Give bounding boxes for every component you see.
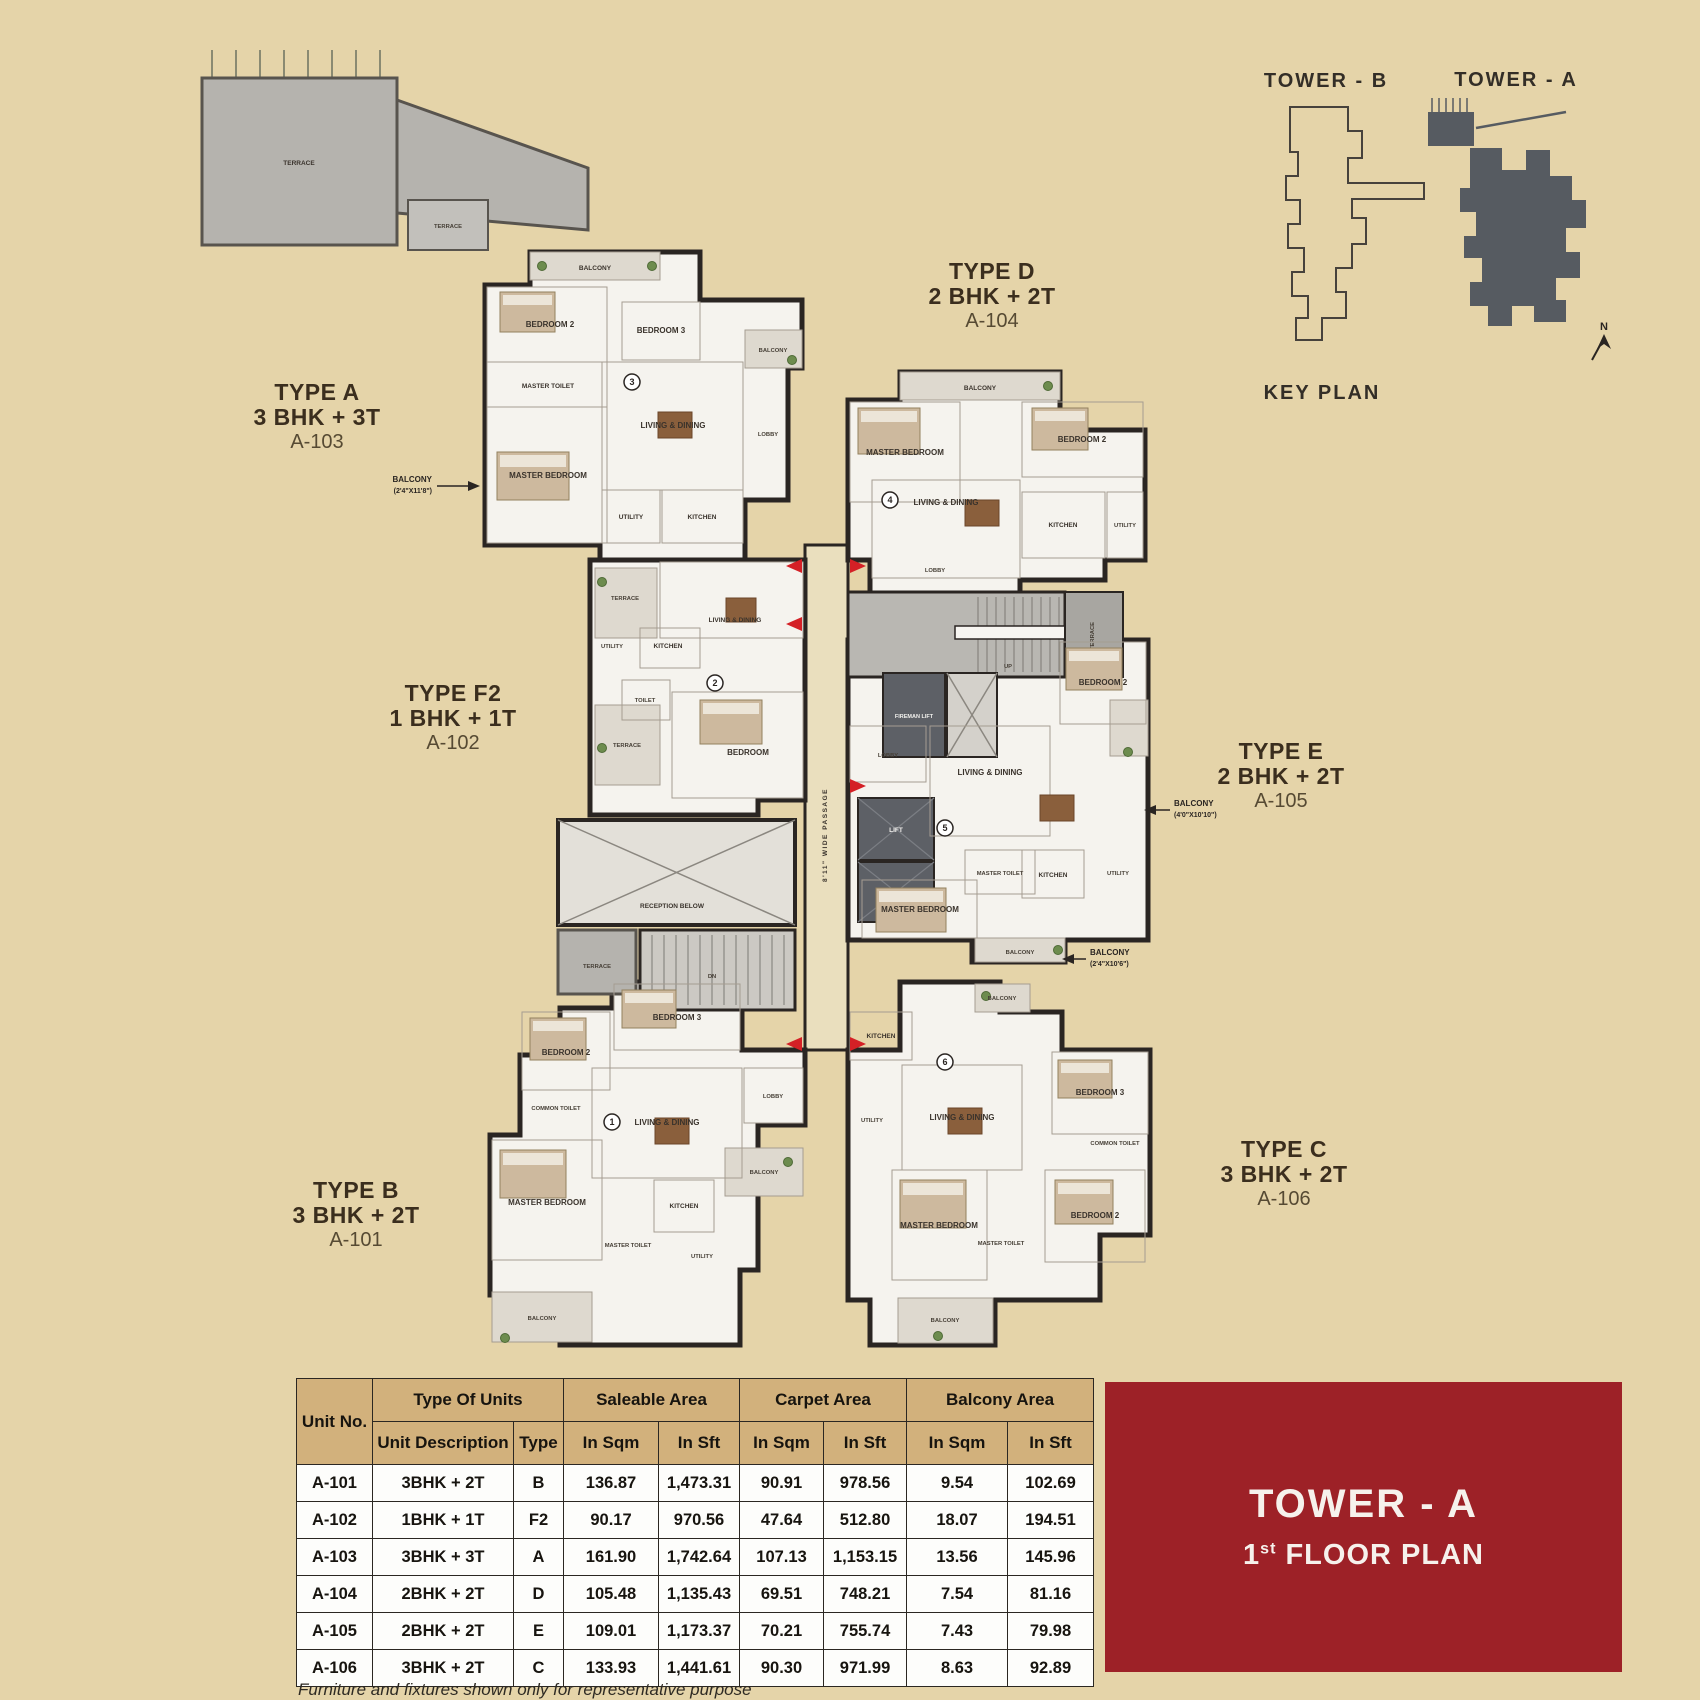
tower-title-box: TOWER - A 1st FLOOR PLAN [1105, 1382, 1622, 1672]
table-row: A-1033BHK + 3TA161.901,742.64107.131,153… [297, 1539, 1094, 1576]
room-label: LIVING & DINING [709, 617, 762, 624]
unit-mark: 2 [712, 678, 717, 688]
north-arrow-icon: N [1592, 321, 1611, 360]
table-cell: 3BHK + 3T [373, 1539, 514, 1576]
table-cell: 755.74 [824, 1613, 907, 1650]
floor-plan-page: TERRACE TERRACE 8'11" WIDE PASSAGE TERRA… [0, 0, 1700, 1700]
room-label: UTILITY [601, 644, 623, 650]
key-plan-title: KEY PLAN [1264, 382, 1381, 404]
unit-a104-outline [848, 372, 1145, 600]
room-label: BEDROOM 2 [1058, 435, 1107, 444]
type-unit-no: A-101 [246, 1228, 466, 1253]
room-label: TERRACE [283, 160, 315, 167]
type-name: TYPE B [246, 1178, 466, 1203]
table-cell: A [514, 1539, 564, 1576]
type-config: 3 BHK + 2T [1174, 1162, 1394, 1187]
unit-no-cell: A-102 [297, 1502, 373, 1539]
room-label: UP [1004, 664, 1012, 670]
type-config: 2 BHK + 2T [1171, 764, 1391, 789]
room-label: TERRACE [1090, 622, 1096, 650]
floor-title: 1st FLOOR PLAN [1243, 1539, 1484, 1572]
unit-no-cell: A-105 [297, 1613, 373, 1650]
room-label: MASTER TOILET [977, 871, 1024, 877]
table-cell: 105.48 [564, 1576, 659, 1613]
type-label-c: TYPE C 3 BHK + 2T A-106 [1174, 1137, 1394, 1212]
key-plan: TOWER - B TOWER - A KEY PLAN N [1264, 69, 1611, 404]
unit-mark: 1 [609, 1117, 614, 1127]
type-label-d: TYPE D 2 BHK + 2T A-104 [882, 259, 1102, 334]
type-name: TYPE F2 [343, 681, 563, 706]
room-label: UTILITY [1107, 871, 1129, 877]
unit-area-table: Unit No. Type Of Units Saleable Area Car… [296, 1378, 1094, 1687]
unit-mark: 6 [942, 1057, 947, 1067]
table-cell: 109.01 [564, 1613, 659, 1650]
table-cell: 748.21 [824, 1576, 907, 1613]
svg-text:BALCONY: BALCONY [392, 475, 432, 484]
table-cell: 1BHK + 1T [373, 1502, 514, 1539]
table-cell: 102.69 [1008, 1465, 1094, 1502]
room-label: BEDROOM 3 [1076, 1088, 1125, 1097]
room-label: TERRACE [613, 743, 641, 749]
room-label: MASTER BEDROOM [866, 448, 944, 457]
room-label: BEDROOM [727, 748, 769, 757]
room-label: FIREMAN LIFT [895, 714, 934, 720]
table-cell: F2 [514, 1502, 564, 1539]
type-label-b: TYPE B 3 BHK + 2T A-101 [246, 1178, 466, 1253]
table-row: A-1052BHK + 2TE109.011,173.3770.21755.74… [297, 1613, 1094, 1650]
room-label: BALCONY [1006, 950, 1035, 956]
col-unit-no: Unit No. [297, 1379, 373, 1465]
table-row: A-1021BHK + 1TF290.17970.5647.64512.8018… [297, 1502, 1094, 1539]
table-cell: 2BHK + 2T [373, 1576, 514, 1613]
room-label: TERRACE [611, 596, 639, 602]
room-label: TOILET [635, 698, 656, 704]
room-label: DN [708, 974, 716, 980]
key-plan-tower-a-label: TOWER - A [1454, 69, 1578, 91]
table-cell: 978.56 [824, 1465, 907, 1502]
room-label: TERRACE [583, 964, 611, 970]
unit-no-cell: A-101 [297, 1465, 373, 1502]
table-cell: 1,173.37 [659, 1613, 740, 1650]
room-label: KITCHEN [867, 1033, 896, 1040]
room-label: BALCONY [759, 348, 788, 354]
room-label: MASTER BEDROOM [508, 1198, 586, 1207]
table-cell: 9.54 [907, 1465, 1008, 1502]
col-sub: In Sqm [740, 1422, 824, 1465]
unit-table-body: A-1013BHK + 2TB136.871,473.3190.91978.56… [297, 1465, 1094, 1687]
room-label: BALCONY [528, 1316, 557, 1322]
col-sub: In Sqm [907, 1422, 1008, 1465]
room-label: BALCONY [964, 385, 997, 392]
table-cell: 136.87 [564, 1465, 659, 1502]
table-row: A-1013BHK + 2TB136.871,473.3190.91978.56… [297, 1465, 1094, 1502]
table-cell: 971.99 [824, 1650, 907, 1687]
table-cell: 79.98 [1008, 1613, 1094, 1650]
north-label: N [1600, 321, 1608, 333]
room-label: COMMON TOILET [1090, 1141, 1140, 1147]
unit-mark: 5 [942, 823, 947, 833]
table-cell: 13.56 [907, 1539, 1008, 1576]
table-cell: 1,742.64 [659, 1539, 740, 1576]
room-label: KITCHEN [1049, 522, 1078, 529]
svg-text:BALCONY: BALCONY [1090, 948, 1130, 957]
room-label: UTILITY [1114, 523, 1136, 529]
table-cell: 8.63 [907, 1650, 1008, 1687]
table-cell: 70.21 [740, 1613, 824, 1650]
room-label: MASTER TOILET [978, 1241, 1025, 1247]
table-cell: 90.30 [740, 1650, 824, 1687]
unit-no-cell: A-104 [297, 1576, 373, 1613]
passage-label: 8'11" WIDE PASSAGE [822, 788, 829, 882]
room-label: LIVING & DINING [641, 421, 706, 430]
type-label-f2: TYPE F2 1 BHK + 1T A-102 [343, 681, 563, 756]
table-cell: 1,473.31 [659, 1465, 740, 1502]
type-name: TYPE C [1174, 1137, 1394, 1162]
col-sub: In Sft [824, 1422, 907, 1465]
col-balcony-area: Balcony Area [907, 1379, 1094, 1422]
room-label: LOBBY [758, 432, 778, 438]
col-carpet-area: Carpet Area [740, 1379, 907, 1422]
type-unit-no: A-106 [1174, 1187, 1394, 1212]
table-cell: 1,135.43 [659, 1576, 740, 1613]
room-label: BEDROOM 2 [1079, 678, 1128, 687]
room-label: KITCHEN [654, 643, 683, 650]
unit-mark: 4 [887, 495, 892, 505]
room-label: MASTER BEDROOM [509, 471, 587, 480]
type-name: TYPE E [1171, 739, 1391, 764]
table-cell: E [514, 1613, 564, 1650]
room-label: COMMON TOILET [531, 1106, 581, 1112]
svg-text:(2'4"X10'6"): (2'4"X10'6") [1090, 961, 1129, 968]
type-config: 3 BHK + 3T [207, 405, 427, 430]
room-label: LIVING & DINING [635, 1118, 700, 1127]
room-label: UTILITY [691, 1254, 713, 1260]
tower-title: TOWER - A [1249, 1482, 1478, 1527]
table-cell: 81.16 [1008, 1576, 1094, 1613]
table-cell: B [514, 1465, 564, 1502]
type-label-e: TYPE E 2 BHK + 2T A-105 [1171, 739, 1391, 814]
table-cell: 107.13 [740, 1539, 824, 1576]
type-label-a: TYPE A 3 BHK + 3T A-103 [207, 380, 427, 455]
table-cell: 7.43 [907, 1613, 1008, 1650]
room-label: TERRACE [434, 224, 462, 230]
svg-text:(2'4"X11'8"): (2'4"X11'8") [394, 488, 432, 495]
room-label: MASTER BEDROOM [900, 1221, 978, 1230]
table-cell: 18.07 [907, 1502, 1008, 1539]
type-config: 1 BHK + 1T [343, 706, 563, 731]
room-label: BEDROOM 2 [542, 1048, 591, 1057]
col-sub: Unit Description [373, 1422, 514, 1465]
table-cell: 512.80 [824, 1502, 907, 1539]
room-label: BEDROOM 3 [653, 1013, 702, 1022]
type-unit-no: A-102 [343, 731, 563, 756]
room-label: LIVING & DINING [958, 768, 1023, 777]
table-header: Unit No. Type Of Units Saleable Area Car… [297, 1379, 1094, 1465]
table-cell: 970.56 [659, 1502, 740, 1539]
tower-a-silhouette [1428, 98, 1586, 326]
type-unit-no: A-103 [207, 430, 427, 455]
room-label: LIFT [889, 827, 903, 834]
room-label: KITCHEN [688, 514, 717, 521]
unit-mark: 3 [629, 377, 634, 387]
room-label: BALCONY [988, 996, 1017, 1002]
room-label: MASTER TOILET [522, 383, 574, 390]
room-label: MASTER TOILET [605, 1243, 652, 1249]
room-label: LOBBY [925, 568, 945, 574]
room-label: RECEPTION BELOW [640, 903, 705, 910]
balcony-annotation: BALCONY (2'4"X11'8") [392, 475, 480, 495]
table-cell: 3BHK + 2T [373, 1465, 514, 1502]
room-label: LOBBY [878, 753, 898, 759]
room-label: UTILITY [861, 1118, 883, 1124]
col-sub: In Sft [1008, 1422, 1094, 1465]
unit-no-cell: A-103 [297, 1539, 373, 1576]
table-cell: 47.64 [740, 1502, 824, 1539]
type-config: 2 BHK + 2T [882, 284, 1102, 309]
table-cell: 194.51 [1008, 1502, 1094, 1539]
col-sub: Type [514, 1422, 564, 1465]
col-saleable-area: Saleable Area [564, 1379, 740, 1422]
table-cell: 90.91 [740, 1465, 824, 1502]
table-cell: 69.51 [740, 1576, 824, 1613]
room-label: UTILITY [619, 514, 644, 521]
col-sub: In Sft [659, 1422, 740, 1465]
type-config: 3 BHK + 2T [246, 1203, 466, 1228]
room-label: BEDROOM 2 [1071, 1211, 1120, 1220]
col-sub: In Sqm [564, 1422, 659, 1465]
type-name: TYPE A [207, 380, 427, 405]
room-label: KITCHEN [1039, 872, 1068, 879]
col-type-of-units: Type Of Units [373, 1379, 564, 1422]
table-cell: 7.54 [907, 1576, 1008, 1613]
type-unit-no: A-104 [882, 309, 1102, 334]
room-label: LIVING & DINING [914, 498, 979, 507]
room-label: LIVING & DINING [930, 1113, 995, 1122]
table-row: A-1042BHK + 2TD105.481,135.4369.51748.21… [297, 1576, 1094, 1613]
room-label: BEDROOM 3 [637, 326, 686, 335]
table-cell: 2BHK + 2T [373, 1613, 514, 1650]
room-label: KITCHEN [670, 1203, 699, 1210]
terrace-structures: TERRACE TERRACE [202, 50, 588, 250]
room-label: BALCONY [931, 1318, 960, 1324]
room-label: LOBBY [763, 1094, 783, 1100]
table-cell: 145.96 [1008, 1539, 1094, 1576]
table-cell: 1,153.15 [824, 1539, 907, 1576]
type-unit-no: A-105 [1171, 789, 1391, 814]
key-plan-tower-b-label: TOWER - B [1264, 70, 1388, 92]
table-cell: 90.17 [564, 1502, 659, 1539]
room-label: MASTER BEDROOM [881, 905, 959, 914]
table-cell: D [514, 1576, 564, 1613]
balcony-annotation: BALCONY (2'4"X10'6") [1062, 948, 1130, 968]
room-label: BALCONY [750, 1170, 779, 1176]
type-name: TYPE D [882, 259, 1102, 284]
tower-b-outline [1286, 107, 1424, 340]
table-cell: 92.89 [1008, 1650, 1094, 1687]
room-label: BALCONY [579, 265, 612, 272]
footer-note: Furniture and fixtures shown only for re… [298, 1680, 752, 1700]
table-cell: 161.90 [564, 1539, 659, 1576]
room-label: BEDROOM 2 [526, 320, 575, 329]
